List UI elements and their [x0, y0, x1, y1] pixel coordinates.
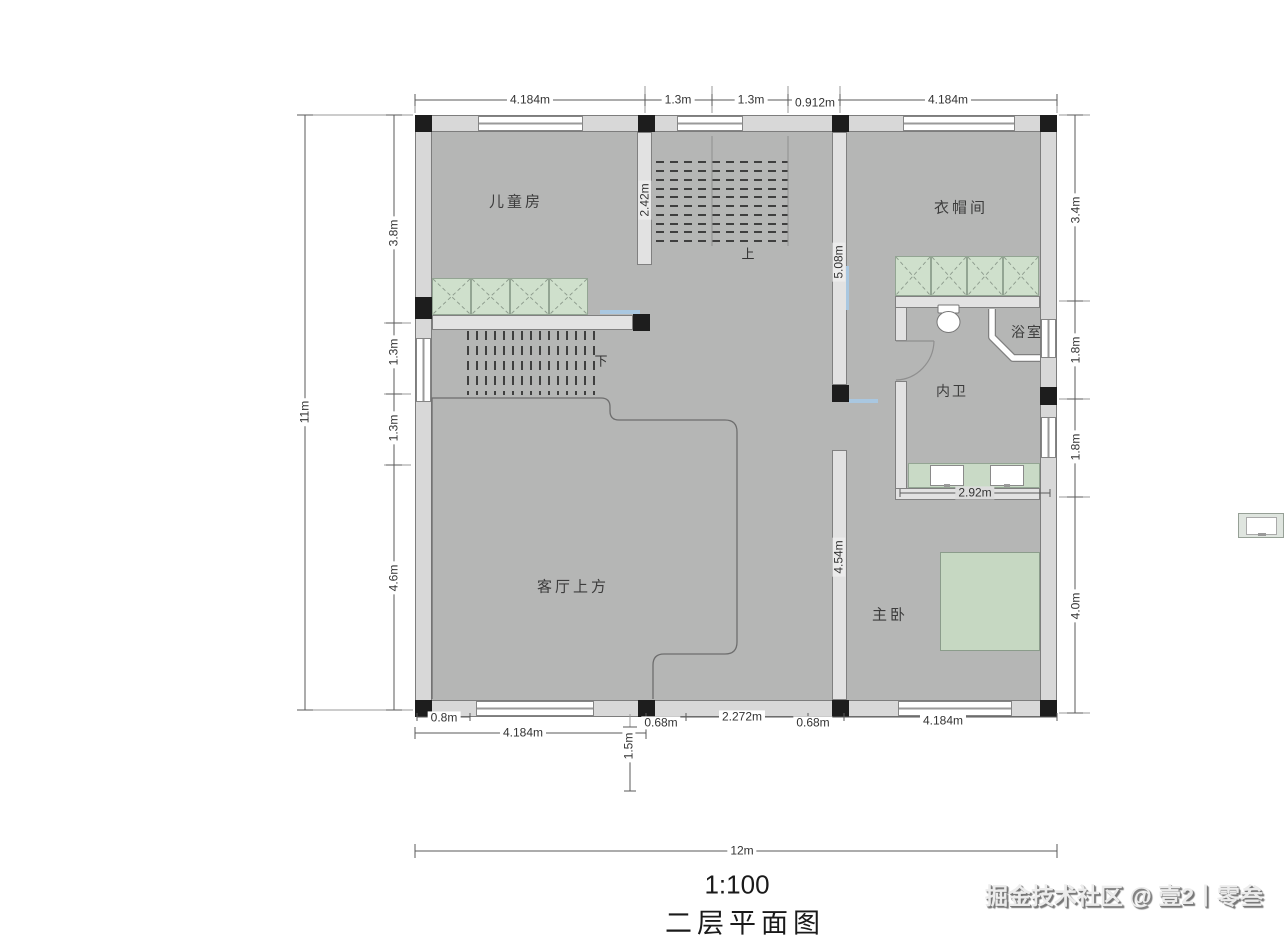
dim-label: 1.8m [1069, 431, 1082, 464]
sink-drain [944, 484, 950, 487]
window-opening [478, 116, 583, 131]
wardrobe-cell [471, 278, 510, 315]
bathroom-left-wall-lower [895, 381, 907, 500]
dim-label: 4.54m [832, 537, 845, 576]
dim-label: 0.912m [792, 96, 838, 109]
wall-right [1040, 115, 1057, 717]
watermark: 掘金技术社区 @ 壹2丨零叁 [985, 877, 1263, 911]
dim-label: 4.184m [507, 93, 553, 106]
page-title: 二层平面图 [665, 902, 825, 936]
room-label-cloakroom: 衣帽间 [934, 197, 988, 218]
stair-landing-wall [432, 315, 633, 330]
dim-label: 2.42m [638, 180, 651, 219]
dim-label: 2.272m [719, 710, 765, 723]
dim-label: 4.0m [1069, 590, 1082, 623]
wardrobe-cell [895, 256, 931, 296]
sink [990, 465, 1024, 486]
dim-label: 1.3m [387, 336, 400, 369]
column [832, 385, 849, 402]
sink [930, 465, 964, 486]
dim-label: 4.184m [920, 714, 966, 727]
glass-accent [849, 399, 878, 403]
column [633, 314, 650, 331]
dim-label: 4.184m [500, 726, 546, 739]
dim-label: 5.08m [832, 242, 845, 281]
sink-drain [1004, 484, 1010, 487]
column [832, 700, 849, 717]
column [415, 115, 432, 132]
dim-label: 4.184m [925, 93, 971, 106]
room-label-children-room: 儿童房 [489, 191, 543, 212]
wardrobe-cell [432, 278, 471, 315]
column [415, 297, 432, 319]
glass-accent [600, 310, 640, 314]
wall-left [415, 115, 432, 717]
stairs-down-label: 下 [594, 351, 607, 370]
bed [940, 552, 1040, 651]
dim-label: 0.68m [641, 716, 680, 729]
cloakroom-bottom-wall [895, 296, 1040, 308]
stairs-up-label: 上 [741, 244, 754, 263]
dim-label: 0.68m [793, 716, 832, 729]
room-label-living-room-above: 客厅上方 [537, 576, 609, 597]
dim-label: 12m [727, 844, 756, 857]
dim-label: 4.6m [387, 562, 400, 595]
scale-label: 1:100 [704, 870, 769, 901]
wardrobe-cell [510, 278, 549, 315]
glass-accent [846, 266, 849, 310]
dim-label: 1.3m [735, 93, 768, 106]
column [1040, 115, 1057, 132]
window-opening [903, 116, 1015, 131]
dim-label: 2.92m [955, 486, 994, 499]
room-label-master-bedroom: 主卧 [872, 604, 908, 625]
column [1040, 700, 1057, 717]
window-opening [677, 116, 743, 131]
dim-label: 1.3m [387, 412, 400, 445]
dim-label: 1.3m [662, 93, 695, 106]
wardrobe-cell [549, 278, 588, 315]
column [832, 115, 849, 132]
window-opening [1041, 319, 1056, 358]
window-component-widget[interactable] [1238, 513, 1284, 538]
window-opening [1041, 417, 1056, 458]
room-label-shower-room: 浴室 [1011, 322, 1043, 342]
wardrobe-cell [931, 256, 967, 296]
wardrobe-cell [1003, 256, 1039, 296]
floor-plan-canvas: 4.184m 1.3m 1.3m 0.912m 4.184m 11m 3.8m … [0, 0, 1285, 936]
column [638, 115, 655, 132]
window-opening [416, 338, 431, 402]
dim-label: 11m [298, 398, 311, 426]
column [1040, 387, 1057, 405]
window-opening [476, 701, 594, 716]
room-label-bathroom: 内卫 [936, 381, 968, 401]
dim-label: 0.8m [428, 711, 461, 724]
dim-label: 1.8m [1069, 334, 1082, 367]
wardrobe-cell [967, 256, 1003, 296]
dim-label: 1.5m [622, 730, 635, 763]
dim-label: 3.8m [387, 217, 400, 250]
dim-label: 3.4m [1069, 194, 1082, 227]
window-component-handle [1258, 533, 1266, 536]
